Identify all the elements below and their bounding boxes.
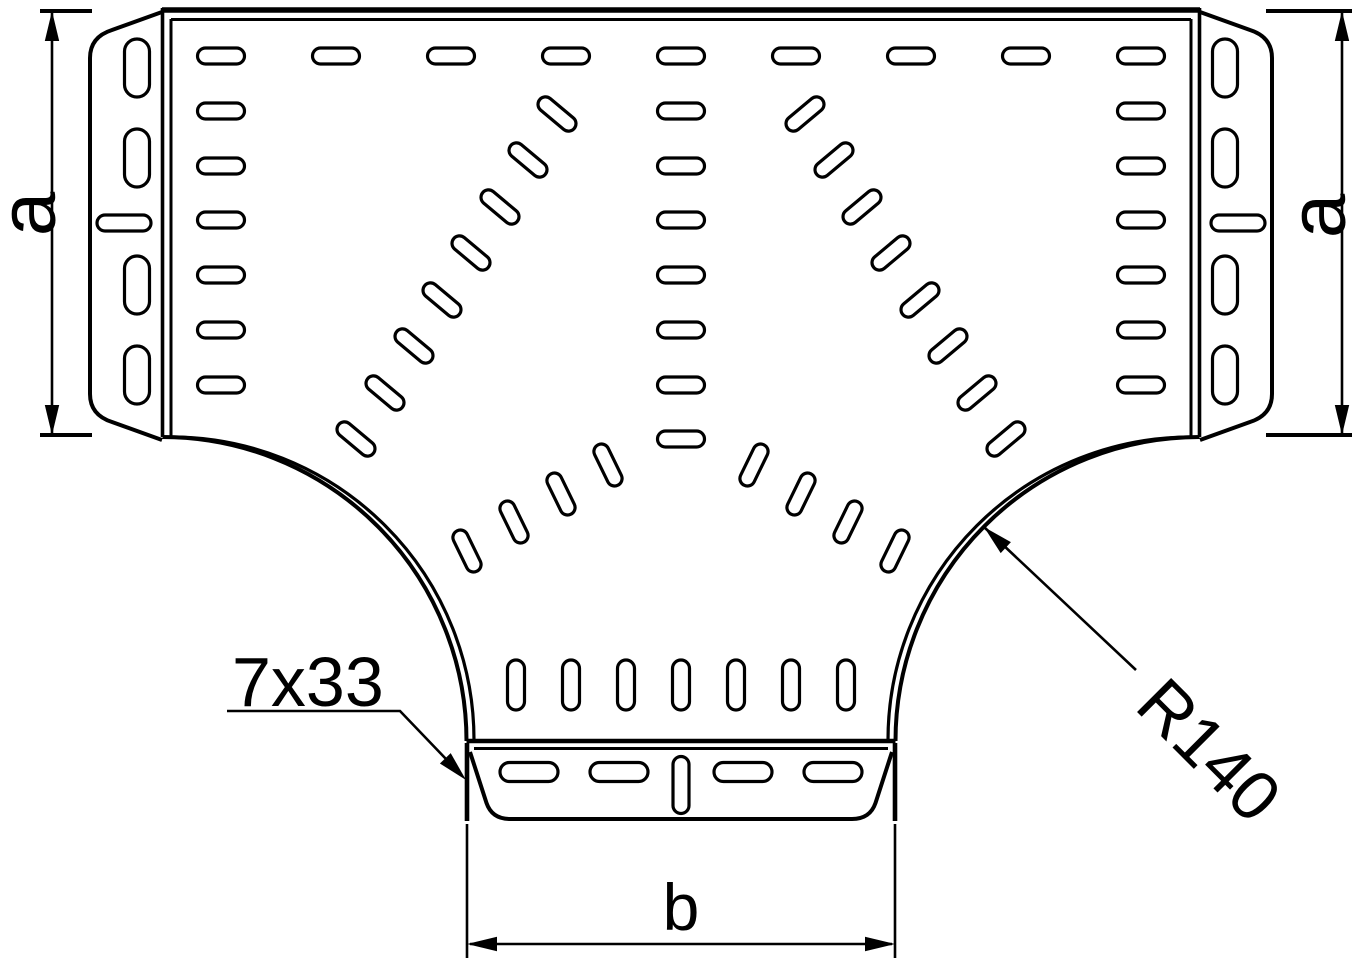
perforation-slot	[869, 233, 913, 273]
perforation-slot	[1213, 129, 1238, 187]
perforation-slot	[506, 140, 550, 180]
perforation-slot	[773, 48, 820, 64]
perforation-slot	[1213, 346, 1238, 404]
perforation-slot	[1211, 215, 1265, 231]
perforation-slot	[783, 660, 800, 710]
perforation-slot	[97, 215, 151, 231]
perforation-slot	[198, 103, 245, 119]
perforation-slot	[1118, 103, 1165, 119]
perforation-slot	[658, 48, 705, 64]
perforation-slot	[673, 757, 689, 814]
perforation-slot	[428, 48, 475, 64]
dimension-b: b	[467, 824, 895, 958]
callout-label-r140: R140	[1122, 663, 1295, 836]
drawing-page: a a b 7x33 R140	[0, 0, 1357, 967]
perforation-slot	[1213, 39, 1238, 97]
perforation-slot	[878, 527, 911, 574]
perforation-slot	[198, 377, 245, 393]
perforation-slot	[450, 527, 483, 574]
perforation-slot	[728, 660, 745, 710]
dimension-a-left: a	[0, 11, 92, 435]
perforation-slot	[838, 660, 855, 710]
perforation-slot	[658, 322, 705, 338]
perforation-slot	[198, 322, 245, 338]
perforation-slot	[831, 498, 864, 545]
perforation-slot	[1003, 48, 1050, 64]
perforation-slot	[125, 256, 150, 314]
perforation-slot	[1118, 377, 1165, 393]
callout-slot-size: 7x33	[227, 643, 466, 780]
perforation-slot	[478, 187, 522, 227]
perforation-slot	[926, 326, 970, 366]
perforation-slot	[392, 326, 436, 366]
perforation-slot	[420, 280, 464, 320]
arrowhead-right	[865, 937, 895, 951]
callout-label-7x33: 7x33	[232, 643, 384, 721]
perforation-slot	[658, 212, 705, 228]
perforation-slot	[1118, 322, 1165, 338]
perforation-slot	[563, 660, 580, 710]
perforation-slot	[1213, 256, 1238, 314]
perforation-slot	[544, 470, 577, 517]
perforation-slot	[618, 660, 635, 710]
callout-radius: R140	[984, 527, 1296, 837]
perforation-slot	[714, 763, 772, 782]
arrowhead-left	[467, 937, 497, 951]
technical-drawing-canvas: a a b 7x33 R140	[0, 0, 1357, 967]
perforation-slot	[363, 373, 407, 413]
perforation-slot	[508, 660, 525, 710]
perforation-slot	[804, 763, 862, 782]
perforation-slot	[955, 373, 999, 413]
perforation-slot	[198, 158, 245, 174]
perforation-slot	[313, 48, 360, 64]
perforation-slot	[590, 763, 648, 782]
perforation-slot	[543, 48, 590, 64]
arrowhead-down	[1335, 405, 1349, 435]
perforation-slot	[198, 212, 245, 228]
perforation-slot	[1118, 48, 1165, 64]
perforation-slot	[535, 94, 579, 134]
dimension-label-a-right: a	[1273, 193, 1357, 238]
perforation-slot	[888, 48, 935, 64]
perforation-slot	[840, 187, 884, 227]
arrowhead-up	[1335, 11, 1349, 41]
perforation-slot	[984, 419, 1028, 459]
perforation-slot	[198, 48, 245, 64]
arrowhead-down	[45, 405, 59, 435]
perforation-slot	[500, 763, 558, 782]
perforation-slot	[783, 94, 827, 134]
arrowhead-up	[45, 11, 59, 41]
perforation-slot	[1118, 267, 1165, 283]
perforation-slot	[449, 233, 493, 273]
perforation-slot	[784, 470, 817, 517]
perforation-slot	[658, 158, 705, 174]
dimension-label-a-left: a	[0, 191, 72, 236]
perforation-slot	[658, 103, 705, 119]
perforation-slot	[812, 140, 856, 180]
perforation-slot	[737, 441, 770, 488]
perforation-slot	[125, 39, 150, 97]
perforation-slot	[1118, 212, 1165, 228]
leader-line	[984, 527, 1136, 670]
perforation-slot	[898, 280, 942, 320]
perforation-slot	[1118, 158, 1165, 174]
perforation-slot	[658, 377, 705, 393]
perforation-slot	[673, 660, 690, 710]
dimension-label-b: b	[663, 870, 700, 944]
perforation-slot	[497, 498, 530, 545]
perforation-slot	[591, 441, 624, 488]
perforation-slot	[125, 346, 150, 404]
dimension-a-right: a	[1266, 11, 1357, 435]
perforation-slot	[125, 129, 150, 187]
perforation-slot	[198, 267, 245, 283]
perforation-slot	[658, 267, 705, 283]
perforation-slot	[334, 419, 378, 459]
perforation-slot	[658, 431, 705, 447]
